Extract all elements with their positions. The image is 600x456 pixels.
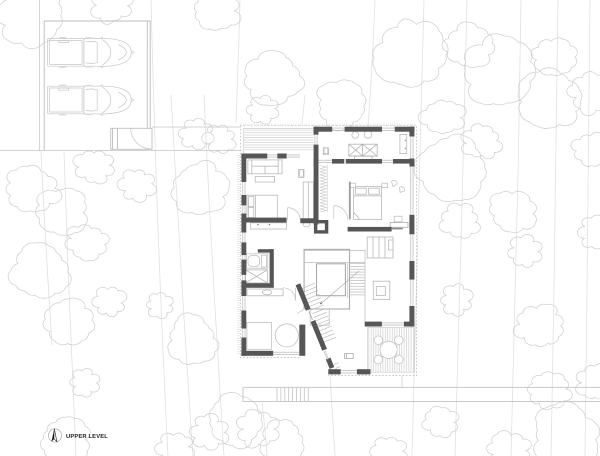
svg-text:UPPER LEVEL: UPPER LEVEL [66,434,108,440]
